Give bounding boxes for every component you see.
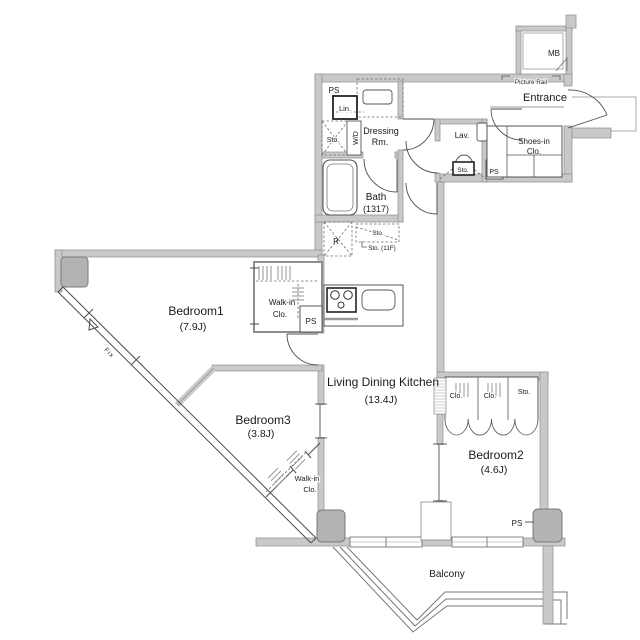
- label-fix-window: Fix: [102, 347, 115, 360]
- column-balcony-left: [317, 510, 345, 542]
- dressing-door-arc: [403, 119, 434, 150]
- room-size-bedroom2: (4.6J): [481, 464, 508, 476]
- room-size-bedroom1: (7.9J): [180, 321, 207, 333]
- dressing-room-fixtures: [322, 79, 403, 215]
- windows: [350, 502, 523, 547]
- label-wd: W/D: [353, 131, 360, 145]
- label-lin: Lin.: [339, 104, 351, 113]
- balcony-railing-outer: [333, 547, 543, 632]
- wall-lav-left-lower: [435, 173, 440, 182]
- pillar-between-windows: [421, 502, 451, 540]
- balcony: [333, 547, 567, 632]
- meter-box: [523, 33, 567, 71]
- label-ps-walkin1: PS: [306, 317, 317, 326]
- wall-mb-left: [516, 26, 521, 74]
- wall-mb-top: [516, 26, 572, 31]
- wall-entrance-right-lower: [564, 126, 572, 182]
- wall-balcony-right: [543, 546, 553, 624]
- column-bedroom1: [61, 257, 88, 287]
- label-fridge: R: [333, 237, 339, 246]
- walkin2-rail: [266, 451, 307, 492]
- room-size-bath: (1317): [363, 204, 389, 214]
- label-clo-1: Clo.: [450, 393, 463, 400]
- room-label-dressing-2: Rm.: [372, 137, 389, 147]
- bedroom1-door-arc: [287, 334, 318, 365]
- balcony-right-step-inner: [553, 600, 561, 624]
- label-walkin1-1: Walk-in: [269, 298, 295, 307]
- bedroom2-sliding-gap: [436, 445, 444, 500]
- sink-icon: [362, 290, 395, 310]
- label-sto-dressing: Sto.: [327, 137, 340, 144]
- room-size-ldk: (13.4J): [365, 394, 398, 406]
- label-ps-dressing: PS: [329, 86, 340, 95]
- room-label-dressing-1: Dressing: [363, 126, 399, 136]
- wall-bedroom3-diagonal-edge: [177, 368, 214, 405]
- room-size-bedroom3: (3.8J): [248, 428, 275, 440]
- room-label-bath: Bath: [366, 192, 387, 203]
- bedroom2-closets: [434, 377, 538, 435]
- label-sto-11f: Sto. (11F): [368, 245, 396, 252]
- label-clo-2: Clo.: [484, 393, 497, 400]
- exterior-corridor-line: [572, 97, 636, 131]
- floor-plan-drawing: Bedroom1 (7.9J) Bedroom3 (3.8J) Bedroom2…: [0, 0, 640, 640]
- wall-hall-left-upper: [398, 81, 403, 119]
- room-label-balcony: Balcony: [429, 569, 465, 580]
- label-sto-row: Sto.: [372, 230, 383, 237]
- room-label-bedroom3: Bedroom3: [235, 413, 291, 427]
- wall-bedroom1-top: [55, 250, 322, 257]
- floor-plan-page: Bedroom1 (7.9J) Bedroom3 (3.8J) Bedroom2…: [0, 0, 640, 640]
- wall-mid-vertical: [437, 182, 444, 378]
- wall-hall-left-lower: [398, 150, 403, 222]
- label-ps-lav: PS: [489, 169, 499, 176]
- bedroom2-closet-folding-doors: [445, 419, 538, 435]
- wall-mb-stub: [566, 15, 576, 28]
- label-walkin2-1: Walk-in: [295, 474, 320, 483]
- entrance-main-door-arc: [568, 90, 607, 115]
- balcony-railing-inner: [347, 547, 543, 620]
- lav-sink-icon: [477, 123, 487, 141]
- wall-bedroom3-top: [212, 365, 322, 371]
- wall-strip-left: [315, 74, 322, 257]
- room-label-ldk: Living Dining Kitchen: [327, 375, 439, 389]
- label-walkin1-2: Clo.: [273, 310, 287, 319]
- label-sto-lav: Sto.: [457, 167, 468, 174]
- label-shoes-closet-2: Clo.: [527, 147, 541, 156]
- label-mb: MB: [548, 49, 560, 58]
- label-picture-rail: Picture Rail: [515, 79, 547, 86]
- balcony-right-step-outer: [553, 592, 567, 619]
- room-label-entrance: Entrance: [523, 92, 567, 104]
- bedroom3-sliding-gap: [317, 405, 325, 437]
- vanity-icon: [363, 90, 392, 104]
- label-walkin2-2: Clo.: [303, 485, 316, 494]
- room-label-lavatory: Lav.: [455, 131, 470, 140]
- bath-door-arc: [364, 159, 397, 192]
- hanger-icon-cluster-5: [287, 451, 305, 469]
- wall-entrance-stub: [572, 128, 611, 138]
- label-shoes-closet-1: Shoes-in: [518, 137, 550, 146]
- column-balcony-right: [533, 509, 562, 542]
- fix-window-tick-1: [84, 309, 93, 318]
- wall-bedroom2-right: [540, 372, 548, 512]
- hanger-icon-cluster-4: [268, 468, 286, 486]
- wall-bath-bottom: [315, 215, 403, 222]
- hall-ldk-door-arc: [406, 183, 437, 214]
- sliding-doors: [315, 404, 447, 501]
- lav-door-arc: [406, 141, 438, 173]
- wall-lav-left-upper: [435, 119, 440, 141]
- fix-window-tick-2: [131, 356, 140, 365]
- wall-entrance-right-upper: [564, 74, 572, 86]
- room-label-bedroom1: Bedroom1: [168, 304, 224, 318]
- bathtub-icon: [323, 160, 357, 215]
- entrance-main-door-leaf: [568, 115, 607, 128]
- label-ps-bedroom2: PS: [512, 519, 523, 528]
- kitchen: [324, 285, 403, 326]
- room-label-bedroom2: Bedroom2: [468, 448, 524, 462]
- label-sto-bedroom2: Sto.: [518, 389, 531, 396]
